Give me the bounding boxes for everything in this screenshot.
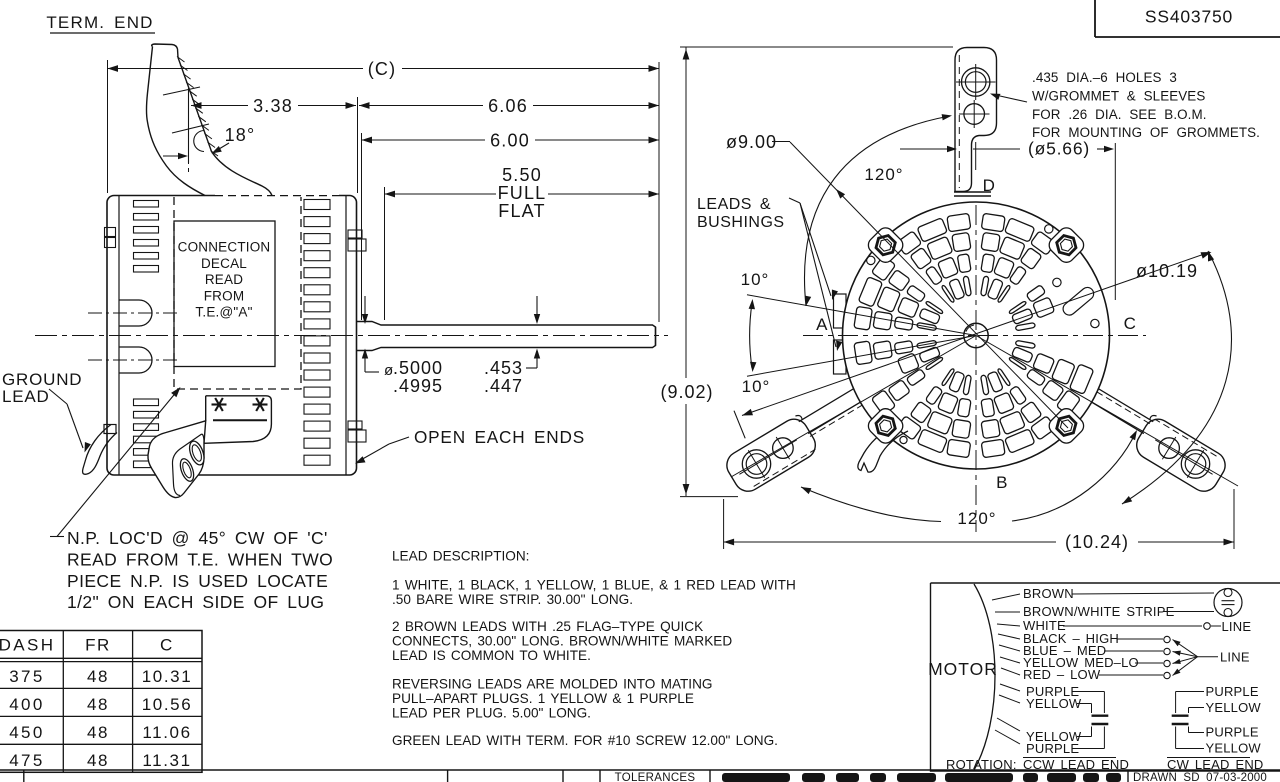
svg-text:.5000: .5000 xyxy=(393,358,443,378)
svg-text:BUSHINGS: BUSHINGS xyxy=(697,214,785,231)
svg-text:.447: .447 xyxy=(484,376,523,396)
svg-text:.4995: .4995 xyxy=(393,376,443,396)
svg-text:(9.02): (9.02) xyxy=(660,382,713,402)
svg-text:FROM: FROM xyxy=(204,288,245,303)
svg-text:LEAD IS COMMON TO WHITE.: LEAD IS COMMON TO WHITE. xyxy=(392,648,591,663)
svg-text:DRAWN SD 07-03-2000: DRAWN SD 07-03-2000 xyxy=(1133,772,1267,782)
svg-text:DASH: DASH xyxy=(0,636,55,655)
svg-text:FLAT: FLAT xyxy=(498,201,545,221)
svg-text:LEAD PER PLUG. 5.00" LONG.: LEAD PER PLUG. 5.00" LONG. xyxy=(392,706,591,721)
svg-text:READ: READ xyxy=(205,272,243,287)
svg-text:C: C xyxy=(1124,314,1137,333)
svg-text:3.38: 3.38 xyxy=(253,96,293,116)
svg-text:11.31: 11.31 xyxy=(142,751,191,770)
svg-text:YELLOW: YELLOW xyxy=(1206,700,1262,715)
svg-text:PIECE N.P. IS USED LOCATE: PIECE N.P. IS USED LOCATE xyxy=(67,571,328,591)
svg-text:ø9.00: ø9.00 xyxy=(726,132,777,152)
svg-text:ø10.19: ø10.19 xyxy=(1136,261,1198,281)
svg-text:1/2" ON EACH SIDE OF LUG: 1/2" ON EACH SIDE OF LUG xyxy=(67,592,324,612)
svg-text:FR: FR xyxy=(85,636,111,655)
svg-text:48: 48 xyxy=(87,751,109,770)
svg-text:120°: 120° xyxy=(864,165,903,184)
svg-text:5.50: 5.50 xyxy=(502,165,542,185)
svg-text:GREEN LEAD WITH TERM. FOR #10: GREEN LEAD WITH TERM. FOR #10 SCREW 12.0… xyxy=(392,733,778,748)
svg-text:A: A xyxy=(816,315,828,334)
svg-text:400: 400 xyxy=(9,695,45,714)
svg-text:2 BROWN LEADS WITH .25 FLAG–TY: 2 BROWN LEADS WITH .25 FLAG–TYPE QUICK xyxy=(392,619,703,634)
svg-text:475: 475 xyxy=(9,751,45,770)
svg-text:450: 450 xyxy=(9,723,45,742)
svg-text:YELLOW: YELLOW xyxy=(1026,696,1082,711)
svg-text:T.E.@"A": T.E.@"A" xyxy=(195,305,252,320)
svg-text:BROWN: BROWN xyxy=(1023,586,1074,601)
svg-text:MOTOR: MOTOR xyxy=(928,659,998,679)
svg-text:RED – LOW: RED – LOW xyxy=(1023,667,1101,682)
svg-text:120°: 120° xyxy=(957,509,996,528)
svg-text:YELLOW: YELLOW xyxy=(1206,741,1262,756)
svg-text:(10.24): (10.24) xyxy=(1065,532,1129,552)
svg-text:BROWN/WHITE STRIPE: BROWN/WHITE STRIPE xyxy=(1023,604,1175,619)
svg-text:TERM. END: TERM. END xyxy=(46,13,153,32)
svg-text:10°: 10° xyxy=(742,377,771,396)
svg-text:48: 48 xyxy=(87,695,109,714)
svg-text:TOLERANCES: TOLERANCES xyxy=(615,772,696,782)
svg-text:LEAD: LEAD xyxy=(2,387,50,406)
svg-text:18°: 18° xyxy=(225,125,256,145)
svg-text:375: 375 xyxy=(9,667,45,686)
svg-text:CONNECTION: CONNECTION xyxy=(178,240,271,255)
svg-text:LEADS &: LEADS & xyxy=(697,196,771,213)
svg-text:10.31: 10.31 xyxy=(142,667,193,686)
svg-text:READ FROM T.E. WHEN TWO: READ FROM T.E. WHEN TWO xyxy=(67,549,333,569)
svg-text:.435 DIA.–6 HOLES 3: .435 DIA.–6 HOLES 3 xyxy=(1032,70,1177,85)
svg-text:(ø5.66): (ø5.66) xyxy=(1028,139,1090,159)
svg-text:W/GROMMET & SLEEVES: W/GROMMET & SLEEVES xyxy=(1032,88,1205,103)
svg-text:10°: 10° xyxy=(741,270,770,289)
svg-text:REVERSING LEADS ARE MOLDED INT: REVERSING LEADS ARE MOLDED INTO MATING xyxy=(392,677,712,692)
svg-text:PURPLE: PURPLE xyxy=(1206,684,1259,699)
svg-text:PURPLE: PURPLE xyxy=(1026,741,1079,756)
svg-text:PULL–APART PLUGS. 1 YELLOW & 1: PULL–APART PLUGS. 1 YELLOW & 1 PURPLE xyxy=(392,691,694,706)
svg-text:LEAD DESCRIPTION:: LEAD DESCRIPTION: xyxy=(392,549,529,564)
svg-text:48: 48 xyxy=(87,667,109,686)
svg-text:C: C xyxy=(160,636,174,655)
svg-text:6.00: 6.00 xyxy=(490,131,530,151)
svg-text:1 WHITE, 1 BLACK, 1 YELLOW, 1: 1 WHITE, 1 BLACK, 1 YELLOW, 1 BLUE, & 1 … xyxy=(392,577,796,592)
svg-text:N.P. LOC'D @ 45° CW OF 'C': N.P. LOC'D @ 45° CW OF 'C' xyxy=(67,528,328,548)
svg-text:(C): (C) xyxy=(368,59,397,79)
svg-text:CONNECTS, 30.00" LONG. BROWN/W: CONNECTS, 30.00" LONG. BROWN/WHITE MARKE… xyxy=(392,633,732,648)
svg-text:FULL: FULL xyxy=(498,183,547,203)
svg-text:LINE: LINE xyxy=(1220,650,1250,665)
svg-text:.453: .453 xyxy=(484,358,523,378)
svg-text:FOR .26 DIA. SEE B.O.M.: FOR .26 DIA. SEE B.O.M. xyxy=(1032,107,1207,122)
svg-text:.50 BARE WIRE STRIP. 30.00" LO: .50 BARE WIRE STRIP. 30.00" LONG. xyxy=(392,592,633,607)
svg-text:B: B xyxy=(996,473,1008,492)
svg-text:6.06: 6.06 xyxy=(488,96,528,116)
svg-text:11.06: 11.06 xyxy=(142,723,191,742)
svg-text:PURPLE: PURPLE xyxy=(1206,725,1259,740)
svg-text:48: 48 xyxy=(87,723,109,742)
svg-text:DECAL: DECAL xyxy=(201,256,247,271)
svg-text:SS403750: SS403750 xyxy=(1145,7,1233,27)
svg-text:LINE: LINE xyxy=(1222,619,1252,634)
svg-text:10.56: 10.56 xyxy=(142,695,193,714)
svg-text:OPEN EACH ENDS: OPEN EACH ENDS xyxy=(414,427,585,447)
